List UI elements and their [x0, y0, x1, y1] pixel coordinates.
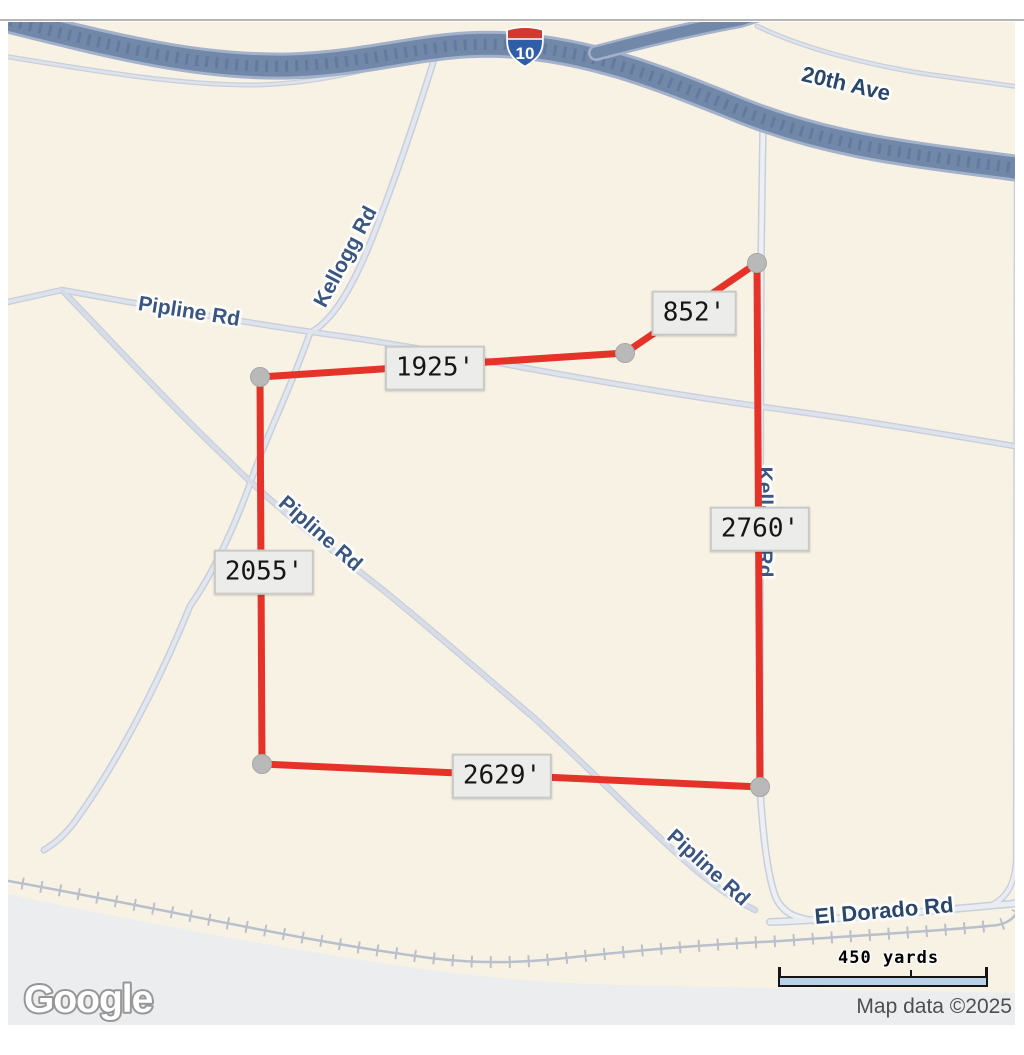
scale-label: 450 yards [838, 948, 939, 968]
map-canvas[interactable] [8, 22, 1015, 1025]
measurement-label-north: 1925' [385, 346, 485, 391]
measurement-label-east: 2760' [710, 507, 810, 552]
measurement-label-west: 2055' [214, 550, 314, 595]
measurement-label-northeast: 852' [652, 291, 737, 336]
google-logo-text: Google [24, 978, 153, 1021]
map-top-border [0, 19, 1024, 21]
google-logo[interactable]: Google [16, 970, 186, 1033]
map-attribution: Map data ©2025 [856, 995, 1012, 1019]
map-screenshot: { "map": { "provider": "Google", "attrib… [0, 0, 1024, 1055]
scale-bar: 450 yards [778, 948, 992, 988]
measurement-label-south: 2629' [452, 754, 552, 799]
scale-bar-rule [778, 976, 988, 987]
